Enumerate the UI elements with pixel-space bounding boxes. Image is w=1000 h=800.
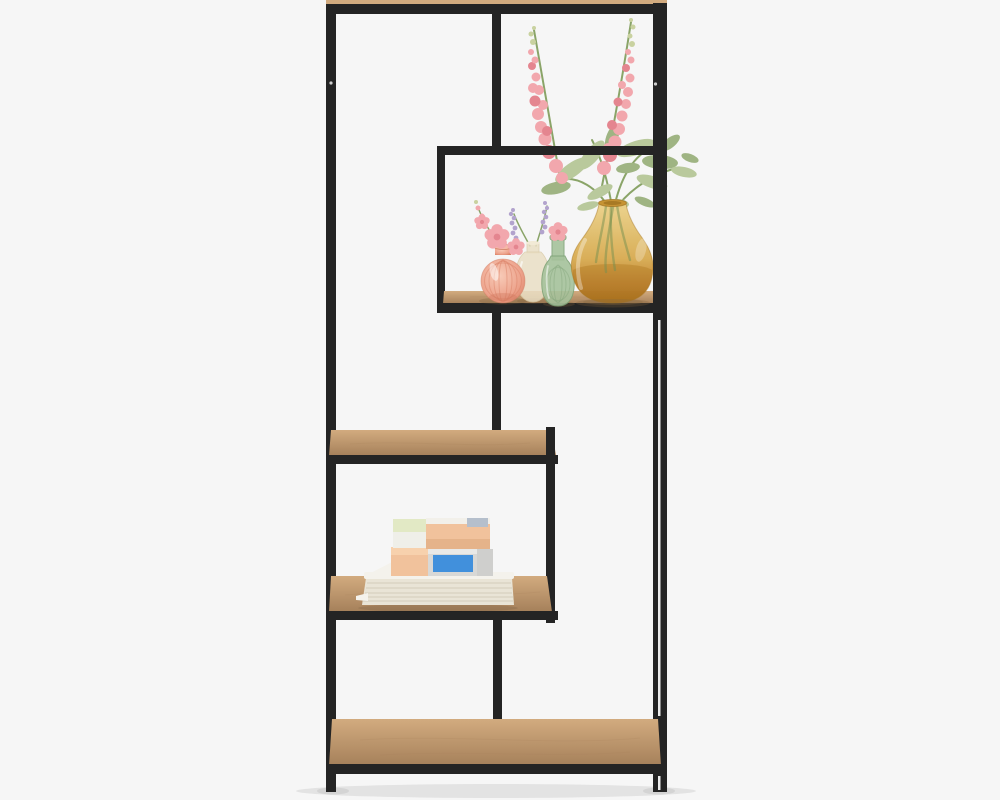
green-box-top bbox=[393, 519, 426, 532]
middle-shelf bbox=[326, 430, 558, 464]
box-row-lower bbox=[391, 547, 493, 576]
middle-shelf-rail bbox=[326, 455, 558, 464]
bottom-shelf bbox=[326, 719, 667, 774]
mid-divider-post bbox=[492, 312, 501, 433]
product-photo-stage bbox=[0, 0, 1000, 800]
blue-box bbox=[433, 555, 473, 572]
bluegray-patch bbox=[467, 518, 488, 527]
green-box-front bbox=[393, 532, 426, 548]
right-post-front bbox=[653, 145, 667, 320]
left-post bbox=[326, 4, 336, 792]
right-post-gap bbox=[658, 318, 661, 716]
cube-top-rail bbox=[437, 146, 667, 155]
box-row-upper bbox=[393, 518, 490, 549]
book-shelf-rail bbox=[326, 611, 558, 620]
peach-box-2-front bbox=[426, 539, 490, 549]
shelving-unit-photo bbox=[0, 0, 1000, 800]
gray-box bbox=[477, 549, 493, 576]
peach-box bbox=[391, 555, 428, 576]
peach-box-top bbox=[391, 547, 428, 555]
right-leg-gap bbox=[658, 776, 661, 790]
lower-divider-post bbox=[493, 619, 502, 722]
bottom-rail bbox=[326, 764, 667, 774]
screw-left bbox=[329, 81, 332, 84]
screw-right bbox=[654, 82, 657, 85]
cube-left-post bbox=[437, 146, 445, 313]
upper-divider-post bbox=[492, 13, 501, 148]
top-rail bbox=[326, 4, 667, 14]
floor-shadow bbox=[296, 784, 696, 798]
bottom-shelf-wood bbox=[329, 719, 661, 766]
